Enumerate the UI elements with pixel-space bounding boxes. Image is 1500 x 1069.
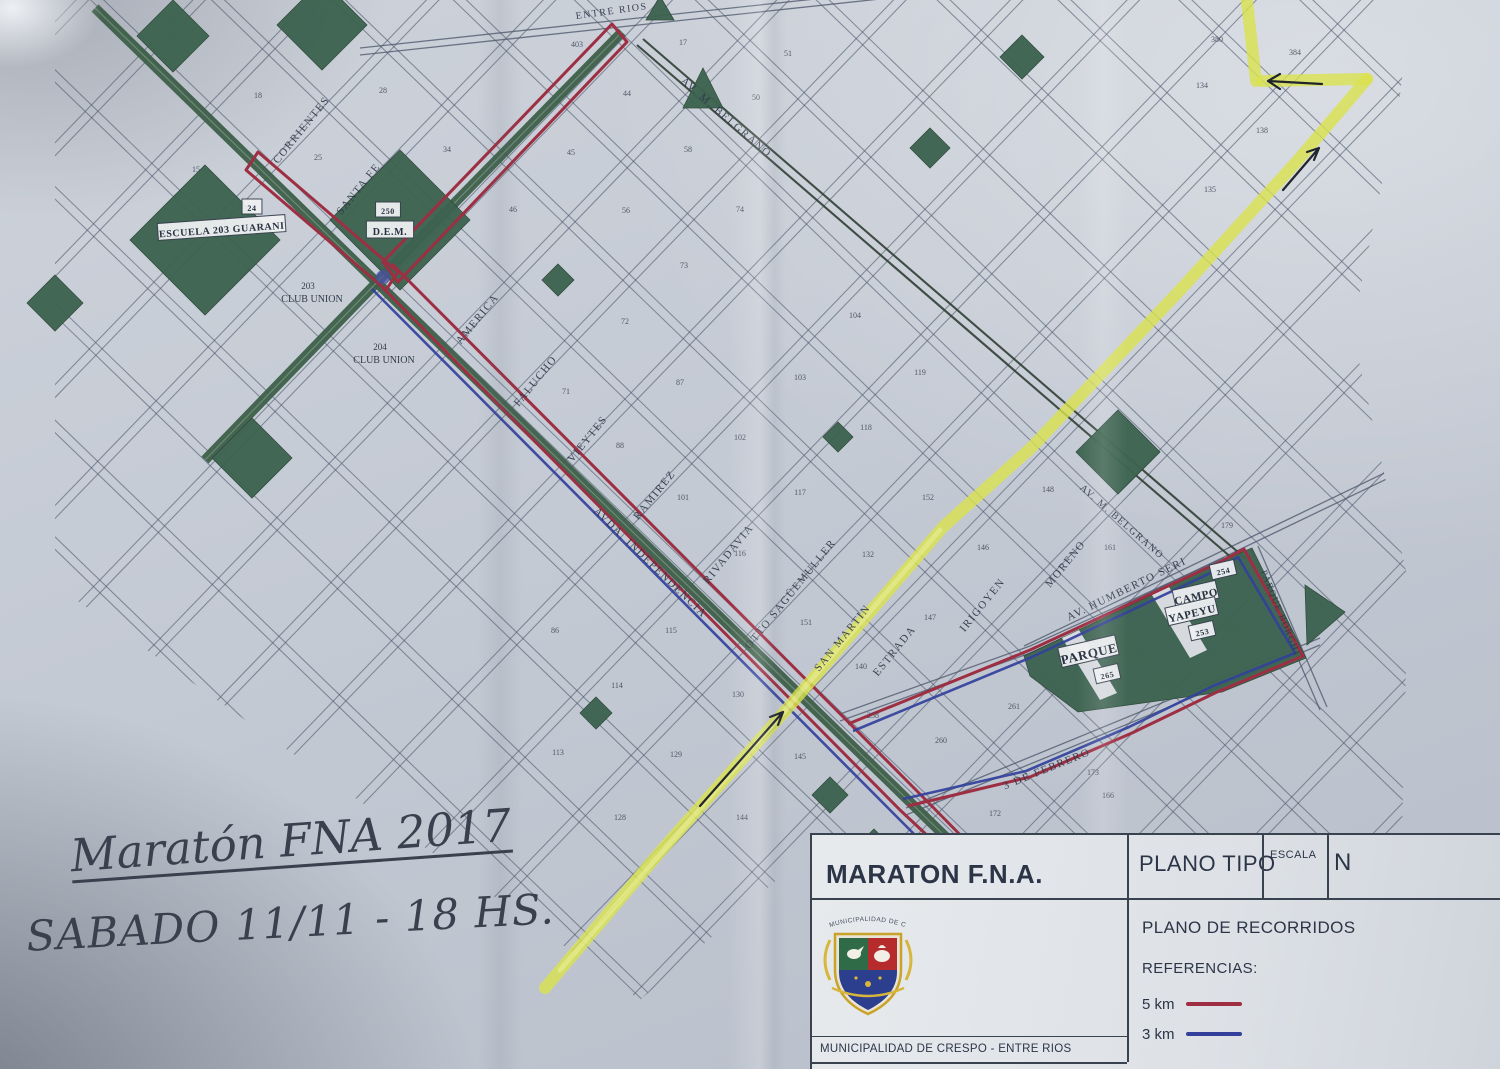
corner-light [0, 0, 120, 80]
grid-street [0, 0, 1500, 641]
street-name: IRIGOYEN [957, 576, 1007, 634]
block-number: 72 [621, 317, 629, 326]
block-number: 73 [680, 261, 688, 270]
block-number: 161 [1104, 543, 1116, 552]
block-number: 102 [734, 433, 746, 442]
references-label: REFERENCIAS: [1142, 960, 1500, 977]
plaza-block [812, 777, 848, 813]
plaza-block [823, 422, 853, 452]
block-number: 166 [1102, 791, 1114, 800]
plaza-block [277, 0, 367, 70]
cutoff-cell-text: N [1334, 849, 1351, 877]
crest-rooster [874, 950, 890, 962]
street-name: VIEYTES [565, 413, 610, 464]
area-label: CLUB UNION [353, 355, 414, 366]
block-number: 128 [614, 813, 626, 822]
block-number: 147 [924, 613, 936, 622]
plaza-block [542, 264, 574, 296]
block-number: 135 [1204, 185, 1216, 194]
pen-arrow-up-right [700, 712, 783, 806]
block-number: 151 [800, 618, 812, 627]
crest-ornament [854, 976, 857, 979]
block-number: 146 [977, 543, 989, 552]
crest-laurel-left [825, 940, 830, 980]
block-number: 113 [552, 748, 564, 757]
block-number: 173 [1087, 768, 1099, 777]
start-marker [376, 270, 390, 284]
block-number: 152 [922, 493, 934, 502]
block-number: 179 [1221, 521, 1233, 530]
block-number: 51 [784, 49, 792, 58]
title-block: MARATON F.N.A. PLANO TIPO ESCALA N MUNIC… [810, 833, 1500, 1069]
block-number: 260 [935, 736, 947, 745]
title-block-left-column: MUNICIPALIDAD DE CRESPO [812, 900, 1127, 1064]
plan-name: PLANO DE RECORRIDOS [1142, 918, 1500, 938]
plaza-block [1000, 35, 1044, 79]
dem-block [330, 150, 470, 290]
title-block-header-row: MARATON F.N.A. PLANO TIPO ESCALA N [812, 835, 1500, 900]
block-number: 380 [1211, 35, 1223, 44]
crest-quarter-blue [839, 970, 897, 1010]
block-number: 261 [1008, 702, 1020, 711]
plaza-block [580, 697, 612, 729]
block-number: 384 [1289, 48, 1301, 57]
plaza-block [910, 128, 950, 168]
street-name: RAMIREZ [631, 468, 678, 522]
legend-5km-swatch [1186, 1002, 1242, 1006]
block-number: 132 [862, 550, 874, 559]
block-number: 129 [670, 750, 682, 759]
area-label: 203 [301, 281, 315, 291]
grid-street [0, 0, 878, 821]
block-number: 28 [379, 86, 387, 95]
block-number: 15 [192, 165, 200, 174]
block-number: 86 [551, 626, 559, 635]
photo-of-marathon-map: 1518282534403175150444546585674737271878… [0, 0, 1500, 1069]
plaza-block [212, 418, 292, 498]
street-name: ENTRE RIOS [575, 1, 648, 22]
block-number: 140 [855, 662, 867, 671]
legend-3km-label: 3 km [1142, 1026, 1184, 1043]
block-number: 119 [914, 368, 926, 377]
block-number: 56 [622, 206, 630, 215]
area-label: 204 [373, 342, 387, 352]
crest-ornament [878, 976, 881, 979]
block-number: 172 [989, 809, 1001, 818]
block-number: 138 [1256, 126, 1268, 135]
legend-3km-swatch [1186, 1032, 1242, 1036]
grid-street [0, 0, 824, 769]
block-number: 148 [1042, 485, 1054, 494]
plaque-text: D.E.M. [373, 227, 407, 238]
block-number: 117 [794, 488, 806, 497]
block-number: 88 [616, 441, 624, 450]
grid-street [0, 0, 582, 536]
block-number: 118 [860, 423, 872, 432]
grid-street [0, 0, 1500, 648]
grid-street [0, 0, 757, 705]
block-number: 44 [623, 89, 631, 98]
block-number: 258 [867, 711, 879, 720]
plaza-triangle-east [1305, 585, 1345, 645]
block-number: 74 [736, 205, 744, 214]
grid-street [0, 0, 1500, 822]
block-number: 45 [567, 148, 575, 157]
block-number: 87 [676, 378, 684, 387]
crest-ornament [865, 981, 871, 987]
street-name: OTTO SAGÜEMULLER [743, 537, 839, 652]
plano-tipo-label: PLANO TIPO [1139, 851, 1276, 877]
route-5km-independencia-ne [392, 264, 985, 860]
block-number: 50 [752, 93, 760, 102]
street-name: 3 DE FEBRERO [1001, 746, 1092, 792]
block-number: 144 [736, 813, 748, 822]
street-name: FALUCHO [512, 353, 560, 408]
block-number: 71 [562, 387, 570, 396]
street-name: CORRIENTES [271, 94, 332, 166]
block-number: 25 [314, 153, 322, 162]
block-number: 46 [509, 205, 517, 214]
block-number: 34 [443, 145, 451, 154]
block-number: 130 [732, 690, 744, 699]
block-number: 101 [677, 493, 689, 502]
block-number: 134 [1196, 81, 1208, 90]
block-number: 58 [684, 145, 692, 154]
legend-5km-label: 5 km [1142, 996, 1184, 1013]
block-number: 103 [794, 373, 806, 382]
escala-label: ESCALA [1270, 849, 1316, 861]
title-block-divider [1327, 835, 1329, 898]
project-title: MARATON F.N.A. [826, 859, 1043, 890]
block-number: 17 [679, 38, 687, 47]
block-number: 114 [611, 681, 623, 690]
municipality-caption: MUNICIPALIDAD DE CRESPO - ENTRE RIOS [812, 1036, 1127, 1062]
legend-row-5km: 5 km [1142, 989, 1500, 1019]
grid-street [0, 0, 703, 653]
area-label: CLUB UNION [281, 294, 342, 305]
highlighter-top-vertical [1247, 2, 1256, 81]
block-number: 18 [254, 91, 262, 100]
title-block-right-column: PLANO DE RECORRIDOS REFERENCIAS: 5 km 3 … [1129, 900, 1500, 1069]
street-name: ESTRADA [871, 624, 919, 679]
grid-street [0, 0, 884, 828]
plaque-text: 24 [247, 204, 256, 213]
legend-row-3km: 3 km [1142, 1019, 1500, 1049]
street-name: AV. M. BELGRANO [678, 75, 774, 160]
street-name: AMERICA [454, 292, 502, 347]
block-number: 104 [849, 311, 861, 320]
municipal-crest: MUNICIPALIDAD DE CRESPO [812, 900, 1127, 1035]
plaque-text: 250 [381, 207, 395, 216]
block-number: 115 [665, 626, 677, 635]
crest-laurel-right [906, 940, 911, 980]
title-block-divider [1262, 835, 1264, 898]
block-number: 145 [794, 752, 806, 761]
block-number: 403 [571, 40, 583, 49]
